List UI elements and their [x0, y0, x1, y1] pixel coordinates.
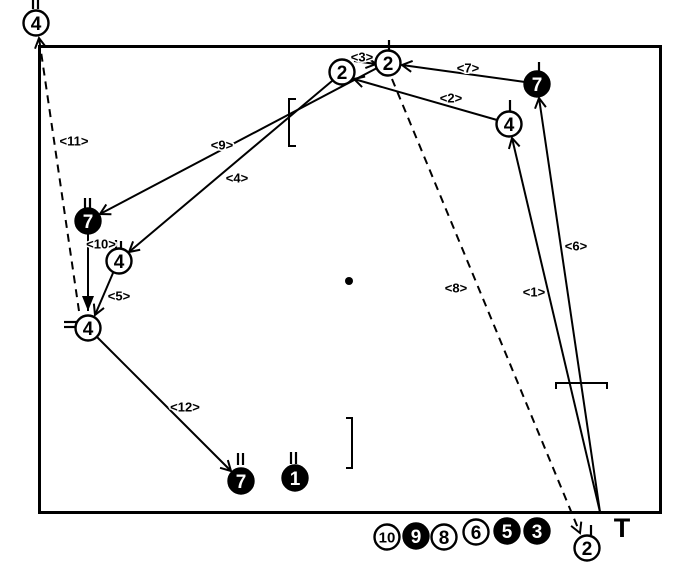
move-label-12: <12>	[170, 400, 200, 415]
bench-ball-label-5: 5	[502, 522, 513, 543]
move-label-7: <7>	[457, 61, 480, 76]
move-label-4: <4>	[226, 171, 249, 186]
move-label-1: <1>	[523, 285, 546, 300]
tee-label: T	[614, 513, 631, 543]
play-diagram: 227474471421098653 <1><2><3><4><5><6><7>…	[0, 0, 700, 562]
ball-label-7: 7	[83, 212, 94, 233]
jack-dot	[345, 277, 353, 285]
move-label-5: <5>	[108, 289, 131, 304]
move-label-6: <6>	[565, 239, 588, 254]
ball-label-4: 4	[504, 115, 515, 136]
bench-ball-label-6: 6	[471, 523, 482, 544]
play-diagram-page: 227474471421098653 <1><2><3><4><5><6><7>…	[0, 0, 700, 562]
move-label-11: <11>	[60, 134, 89, 149]
move-label-2: <2>	[440, 91, 463, 106]
ball-label-4: 4	[83, 319, 94, 340]
move-label-9: <9>	[211, 138, 234, 153]
ball-label-4: 4	[31, 14, 42, 35]
ball-label-2: 2	[582, 539, 593, 560]
ball-label-7: 7	[236, 472, 247, 493]
bench-ball-label-9: 9	[411, 527, 422, 548]
move-label-8: <8>	[445, 281, 468, 296]
bench-ball-label-3: 3	[532, 522, 543, 543]
bench-ball-label-8: 8	[439, 528, 450, 549]
ball-label-2: 2	[337, 63, 348, 84]
move-label-10: <10>	[86, 237, 116, 252]
ball-label-4: 4	[114, 252, 125, 273]
bench-ball-label-10: 10	[379, 530, 396, 547]
ball-label-2: 2	[383, 54, 394, 75]
move-label-3: <3>	[351, 50, 374, 65]
ball-label-7: 7	[532, 75, 543, 96]
ball-label-1: 1	[290, 469, 301, 490]
